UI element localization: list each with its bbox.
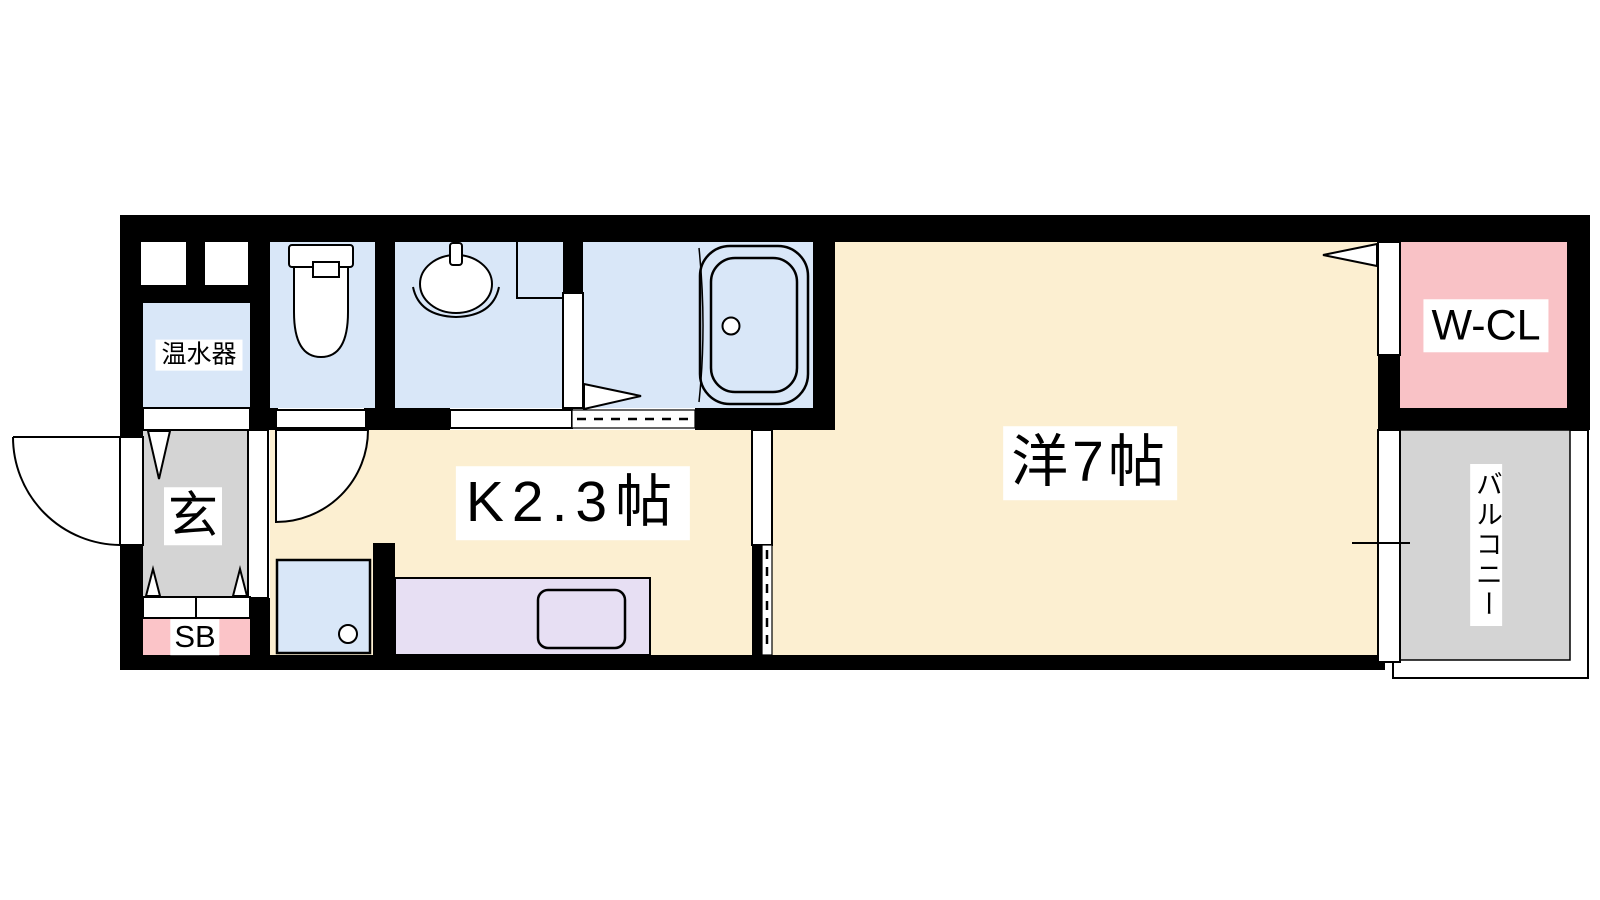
wall-right bbox=[1567, 215, 1590, 430]
pipe-space-1 bbox=[141, 242, 186, 285]
kitchen-room-sliding-door bbox=[752, 430, 772, 545]
wall-washbasin-bath-upper bbox=[563, 215, 583, 293]
bathroom-door bbox=[563, 293, 583, 408]
shoe-box-label: SB bbox=[170, 619, 219, 655]
water-heater-label: 温水器 bbox=[155, 340, 242, 371]
wall-top bbox=[120, 215, 1590, 242]
drain-icon bbox=[339, 625, 357, 643]
wall-heater-toilet bbox=[250, 242, 270, 430]
toilet-icon bbox=[294, 267, 348, 357]
wall-toilet-bottom-right bbox=[364, 408, 395, 430]
entrance-label: 玄 bbox=[164, 487, 222, 545]
toilet-flush-icon bbox=[313, 262, 339, 277]
water-heater-opening bbox=[143, 408, 250, 430]
balcony-label: バルコニー bbox=[1470, 464, 1502, 626]
wall-left-lower bbox=[120, 545, 143, 670]
floor-plan: 温水器 玄 SB K2.3帖 洋7帖 W-CL バルコニー bbox=[0, 0, 1600, 900]
wall-kitchen-room-partition bbox=[752, 545, 763, 655]
washbasin-sliding-door bbox=[450, 410, 572, 428]
wall-bottom bbox=[120, 655, 1385, 670]
wall-wcl-bottom bbox=[1378, 408, 1590, 430]
toilet-doorway bbox=[276, 410, 366, 428]
bathtub-drain-icon bbox=[723, 318, 740, 335]
kitchen-sink-icon bbox=[538, 590, 625, 648]
pipe-space-2 bbox=[205, 242, 248, 285]
floor-plan-svg bbox=[0, 0, 1600, 900]
wall-washbasin-bottom bbox=[395, 408, 450, 430]
wall-bath-right bbox=[813, 242, 835, 430]
wcl-door bbox=[1378, 242, 1400, 355]
western-room-floor-upper bbox=[835, 242, 1378, 430]
wall-toilet-washbasin bbox=[375, 242, 395, 430]
entrance-door-arc-icon bbox=[13, 437, 120, 545]
entrance-hall-partition bbox=[248, 430, 268, 598]
balcony-window bbox=[1378, 430, 1400, 662]
bathroom bbox=[583, 242, 813, 408]
wall-bath-bottom bbox=[695, 408, 835, 430]
wcl-label: W-CL bbox=[1423, 299, 1548, 352]
faucet-icon bbox=[450, 243, 462, 265]
entrance-doorway bbox=[120, 437, 143, 545]
kitchen-label: K2.3帖 bbox=[456, 466, 690, 540]
wall-entrance-kitchen-lower bbox=[250, 598, 270, 655]
wall-kitchen-stub bbox=[373, 543, 395, 655]
western-room-label: 洋7帖 bbox=[1003, 426, 1177, 500]
